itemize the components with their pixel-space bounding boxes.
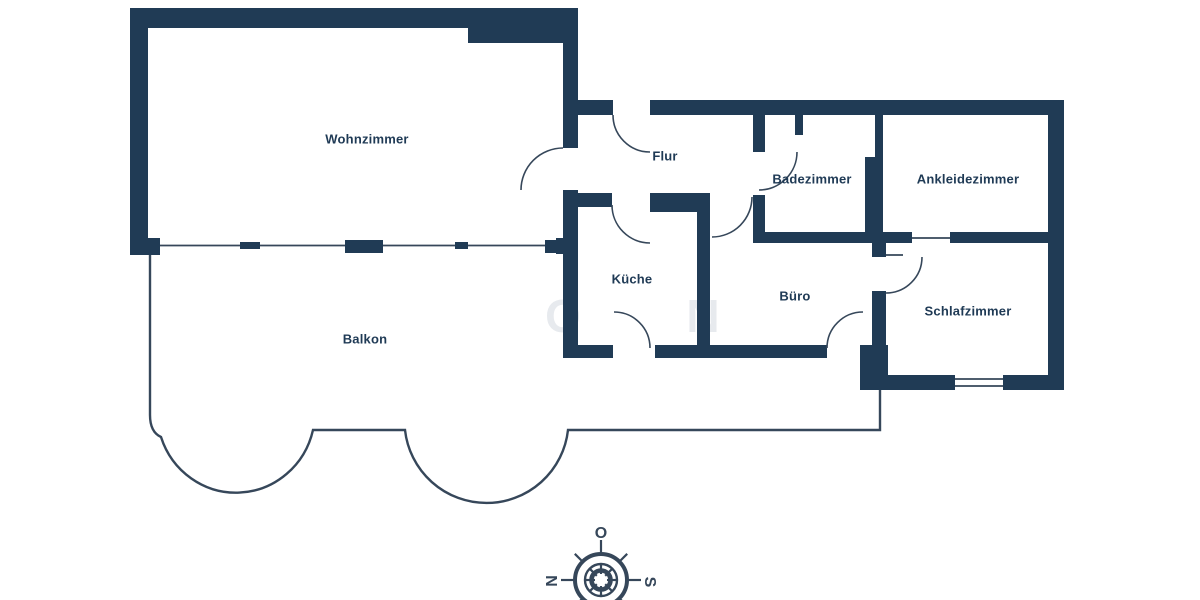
wall-segment: [563, 190, 578, 358]
room-label-wohnzimmer: Wohnzimmer: [325, 131, 408, 146]
walls: [130, 8, 1064, 390]
room-labels: Wohnzimmer Flur Badezimmer Ankleidezimme…: [325, 131, 1019, 346]
wall-segment: [875, 113, 883, 159]
bedroom-door-arc: [886, 257, 922, 293]
room-label-badezimmer: Badezimmer: [772, 171, 851, 186]
kitchen-door-arc: [612, 205, 650, 243]
compass-letter-east: O: [595, 525, 607, 542]
wall-segment: [795, 113, 803, 135]
room-label-balkon: Balkon: [343, 331, 388, 346]
office-balcony-door-arc: [827, 312, 863, 348]
floor-plan: O N: [0, 0, 1200, 600]
wall-segment: [650, 100, 1063, 115]
window-mullion: [545, 240, 567, 253]
wall-segment: [1003, 375, 1064, 390]
compass-letter-north: N: [544, 575, 561, 587]
wall-segment: [950, 232, 1050, 243]
window-mullion: [148, 242, 160, 249]
room-label-ankleidezimmer: Ankleidezimmer: [917, 171, 1020, 186]
compass-letter-south: S: [641, 577, 658, 588]
wall-segment: [578, 100, 613, 115]
compass-rose: O N S: [544, 525, 658, 600]
wall-segment: [563, 28, 578, 148]
wall-segment: [655, 345, 827, 358]
wall-segment: [565, 193, 612, 207]
entry-door-arc: [613, 115, 650, 152]
office-door-arc: [712, 197, 752, 237]
window-mullion: [455, 242, 468, 249]
wall-segment: [753, 113, 765, 152]
kitchen-balcony-door-arc: [614, 312, 650, 348]
wall-segment: [697, 193, 710, 358]
window-mullion: [240, 242, 260, 249]
floor-plan-canvas: O N: [0, 0, 1200, 600]
door-arcs: [521, 115, 922, 348]
wall-segment: [565, 345, 613, 358]
balcony-edge: [150, 255, 880, 503]
balcony-outline: [150, 246, 880, 503]
living-room-door-arc: [521, 148, 563, 190]
wall-segment: [865, 157, 883, 235]
window-mullion: [345, 240, 383, 253]
room-label-schlafzimmer: Schlafzimmer: [925, 303, 1012, 318]
wall-segment: [880, 375, 955, 390]
wall-segment: [1048, 100, 1064, 390]
room-label-kueche: Küche: [612, 271, 653, 286]
room-label-flur: Flur: [652, 148, 677, 163]
wall-segment: [130, 8, 148, 255]
wall-segment: [872, 232, 886, 257]
wall-segment: [468, 8, 578, 43]
room-label-buero: Büro: [779, 288, 810, 303]
